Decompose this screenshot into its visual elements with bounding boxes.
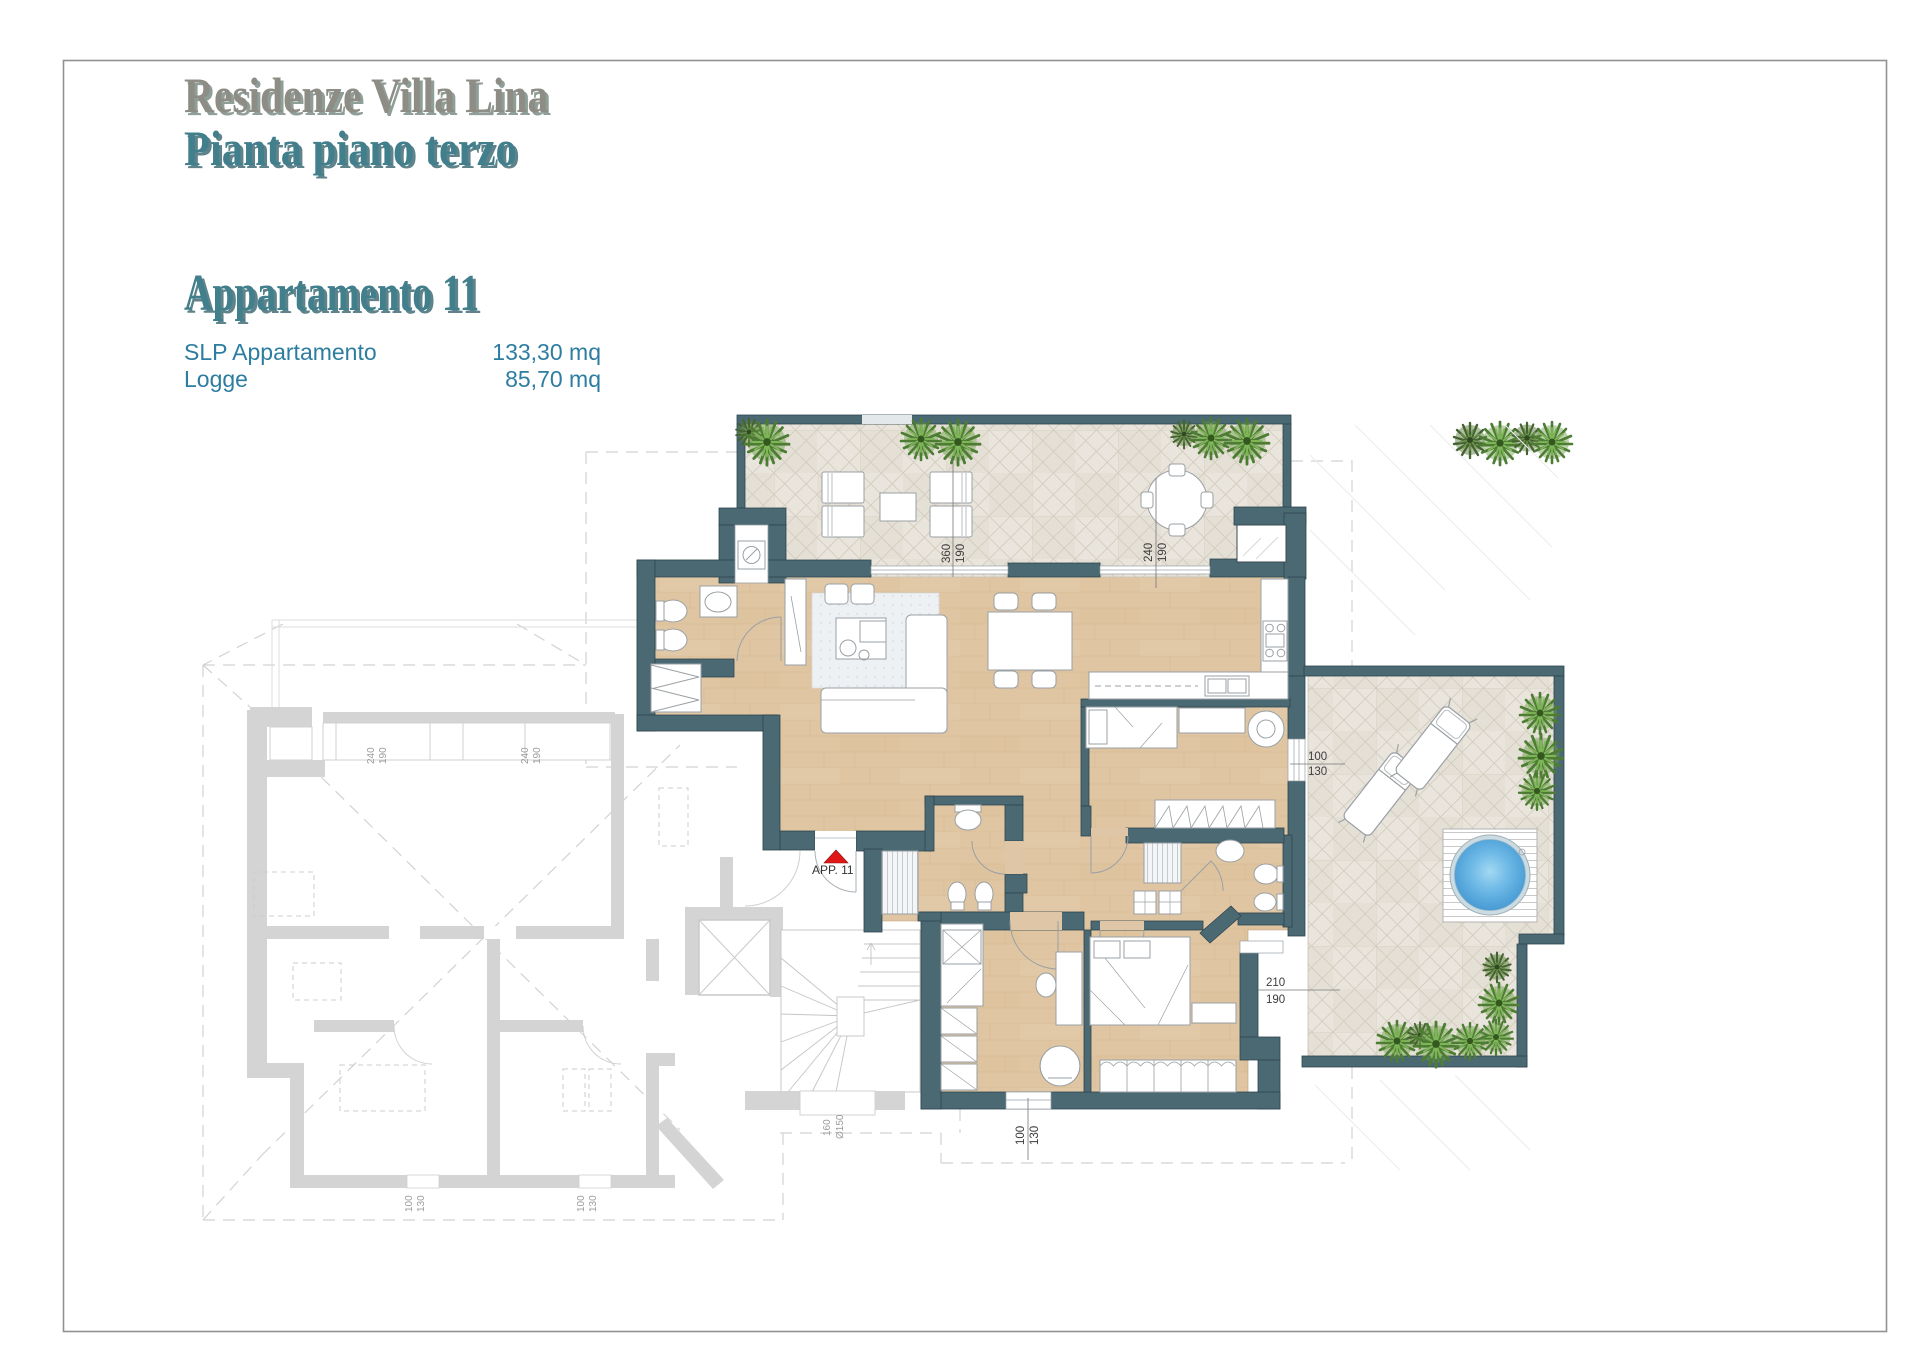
svg-text:130: 130 <box>416 1195 427 1212</box>
svg-text:190: 190 <box>532 747 543 764</box>
svg-text:Ø150: Ø150 <box>835 1114 846 1139</box>
svg-text:Logge: Logge <box>184 366 248 392</box>
svg-text:130: 130 <box>1308 766 1327 778</box>
svg-text:133,30 mq: 133,30 mq <box>492 339 601 365</box>
svg-text:130: 130 <box>1029 1126 1041 1145</box>
svg-text:190: 190 <box>955 544 967 563</box>
svg-text:85,70 mq: 85,70 mq <box>505 366 601 392</box>
svg-text:Appartamento 11: Appartamento 11 <box>184 264 479 321</box>
svg-text:100: 100 <box>576 1195 587 1212</box>
svg-text:100: 100 <box>1308 751 1327 763</box>
svg-text:190: 190 <box>1266 994 1285 1006</box>
svg-text:Residenze Villa Lina: Residenze Villa Lina <box>184 67 548 122</box>
svg-text:210: 210 <box>1266 977 1285 989</box>
svg-text:Pianta piano terzo: Pianta piano terzo <box>184 122 517 177</box>
svg-text:360: 360 <box>941 544 953 563</box>
svg-text:100: 100 <box>1015 1126 1027 1145</box>
svg-text:SLP Appartamento: SLP Appartamento <box>184 339 377 365</box>
svg-text:240: 240 <box>366 747 377 764</box>
svg-text:130: 130 <box>588 1195 599 1212</box>
svg-text:APP. 11: APP. 11 <box>812 863 854 877</box>
svg-text:240: 240 <box>1143 543 1155 562</box>
svg-text:240: 240 <box>520 747 531 764</box>
svg-text:190: 190 <box>1157 543 1169 562</box>
svg-text:160: 160 <box>822 1119 833 1136</box>
svg-text:190: 190 <box>378 747 389 764</box>
svg-text:100: 100 <box>404 1195 415 1212</box>
